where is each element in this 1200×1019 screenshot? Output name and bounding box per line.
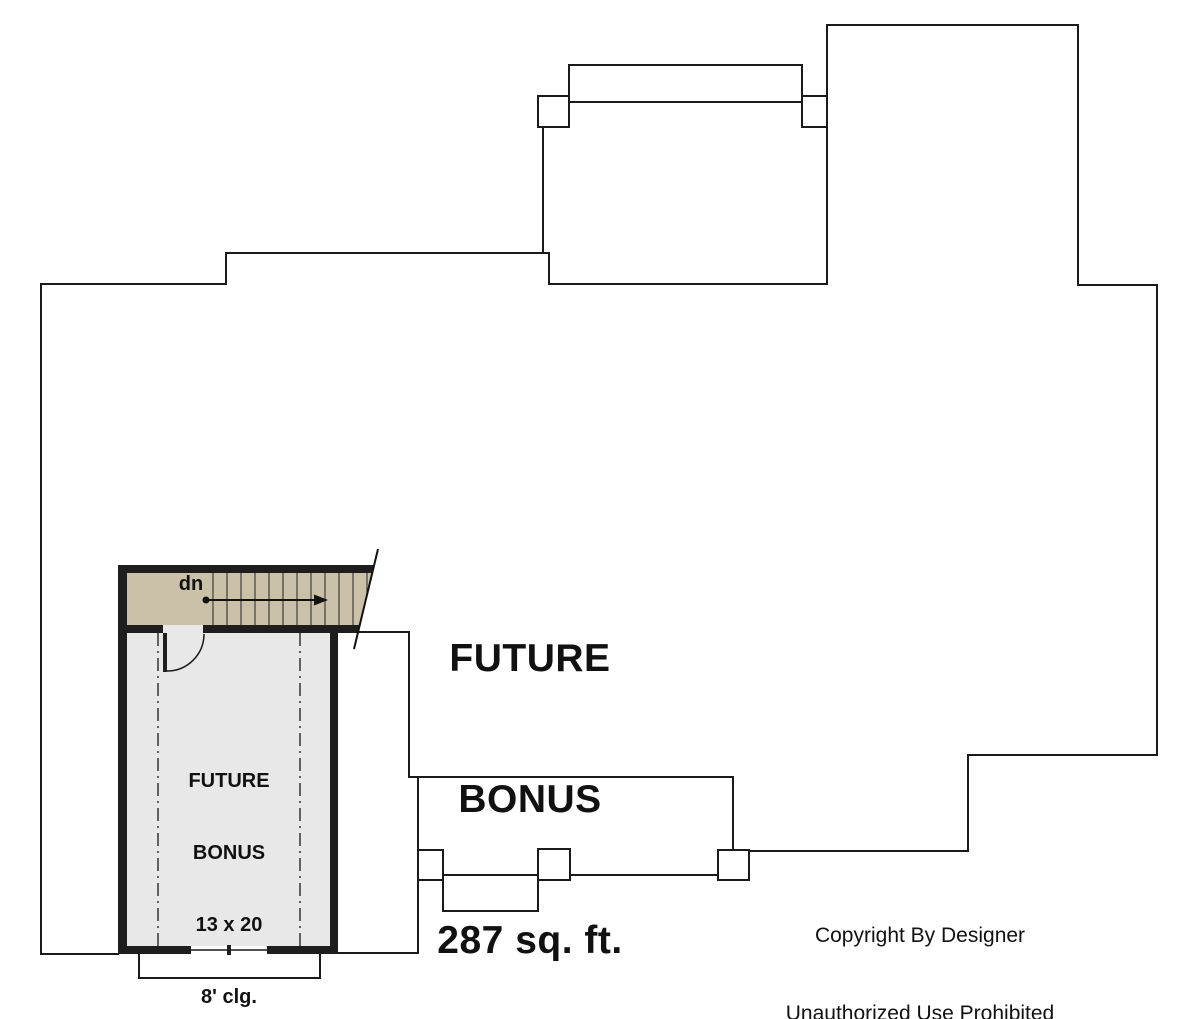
- wall-right: [330, 625, 338, 954]
- copyright-notice: Copyright By Designer Unauthorized Use P…: [769, 871, 1071, 1019]
- floor-plan-page: FUTURE BONUS 287 sq. ft. FUTURE BONUS 13…: [0, 0, 1200, 1019]
- room-name-line2: BONUS: [128, 841, 330, 865]
- upper-left-post: [538, 96, 569, 127]
- stair-direction-label: dn: [174, 573, 208, 595]
- wall-stair-divider-right: [203, 625, 360, 633]
- main-callout-line1: FUTURE: [390, 635, 670, 682]
- upper-beam-outline: [569, 65, 802, 102]
- main-callout-line3: 287 sq. ft.: [390, 917, 670, 964]
- copyright-line1: Copyright By Designer: [769, 923, 1071, 949]
- wall-top: [118, 565, 374, 573]
- room-ceiling-height: 8' clg.: [128, 985, 330, 1009]
- wall-stair-divider-left: [127, 625, 163, 633]
- porch-post-right: [718, 850, 749, 880]
- main-callout: FUTURE BONUS 287 sq. ft.: [390, 541, 670, 1019]
- copyright-line2: Unauthorized Use Prohibited: [769, 1001, 1071, 1019]
- outline-top-left-steps: [41, 127, 543, 284]
- wall-left: [118, 565, 127, 954]
- door-leaf: [163, 633, 167, 672]
- upper-right-post: [802, 96, 827, 127]
- main-callout-line2: BONUS: [390, 776, 670, 823]
- room-label: FUTURE BONUS 13 x 20 8' clg. 287 sq. ft.: [128, 721, 330, 1019]
- outline-left-edge: [41, 284, 118, 954]
- room-dimensions: 13 x 20: [128, 913, 330, 937]
- room-name-line1: FUTURE: [128, 769, 330, 793]
